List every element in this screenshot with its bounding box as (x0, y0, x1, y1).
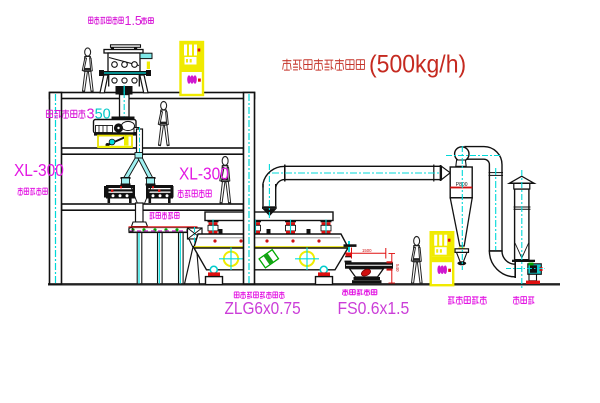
svg-text:1.5: 1.5 (125, 14, 142, 28)
svg-text:1500: 1500 (362, 248, 372, 253)
svg-text:540: 540 (395, 264, 400, 272)
svg-text:ZLG6x0.75: ZLG6x0.75 (225, 299, 301, 318)
svg-text:(500kg/h): (500kg/h) (369, 51, 466, 79)
svg-text:XL-300: XL-300 (14, 160, 64, 180)
svg-text:FS0.6x1.5: FS0.6x1.5 (338, 298, 410, 318)
svg-text:XL-300: XL-300 (179, 163, 229, 183)
svg-text:P800: P800 (456, 182, 468, 188)
svg-text:350: 350 (87, 107, 111, 123)
